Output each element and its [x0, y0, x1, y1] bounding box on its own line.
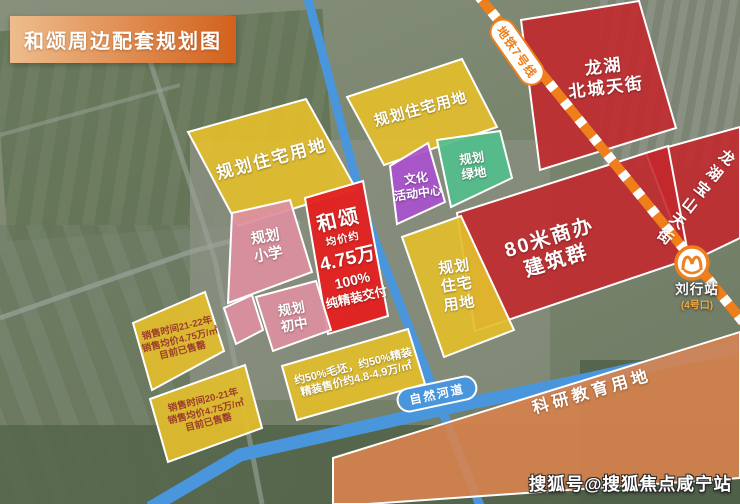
watermark-text: 搜狐号@搜狐焦点咸宁站 — [529, 474, 732, 494]
station-name: 刘行站 — [675, 278, 719, 298]
station-exit-text: (4号口) — [681, 301, 713, 312]
watermark: 搜狐号@搜狐焦点咸宁站 — [529, 471, 732, 496]
station-name-text: 刘行站 — [675, 282, 719, 297]
planning-map: 规划住宅用地 规划住宅用地 规划 住宅 用地 文化 活动中心 规划 绿地 和颂 … — [0, 0, 740, 504]
station-exit: (4号口) — [681, 297, 713, 312]
map-title: 和颂周边配套规划图 — [24, 31, 222, 53]
label-green-space: 规划 绿地 — [458, 150, 487, 184]
satellite-road — [0, 85, 180, 135]
label-middle-school: 规划 初中 — [277, 299, 309, 336]
label-primary-school: 规划 小学 — [250, 227, 285, 267]
map-title-banner: 和颂周边配套规划图 — [10, 16, 236, 63]
